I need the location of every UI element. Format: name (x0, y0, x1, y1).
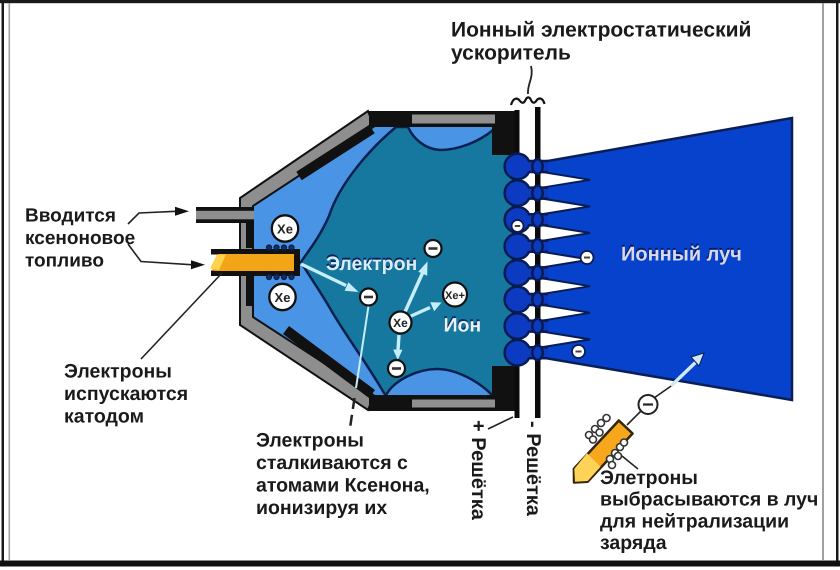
svg-text:Xe: Xe (393, 316, 408, 330)
svg-text:Элетроны: Элетроны (600, 467, 698, 489)
svg-text:Xe: Xe (277, 222, 293, 237)
svg-text:выбрасываются в луч: выбрасываются в луч (600, 489, 818, 511)
svg-text:Xe: Xe (275, 290, 291, 305)
svg-text:Электрон: Электрон (326, 253, 417, 275)
svg-text:для нейтрализации: для нейтрализации (600, 511, 789, 533)
svg-text:заряда: заряда (600, 532, 667, 554)
svg-text:Ионный электростатический: Ионный электростатический (451, 19, 751, 42)
svg-text:испускаются: испускаются (64, 383, 188, 405)
svg-text:+ Решётка: + Решётка (467, 420, 489, 521)
svg-text:топливо: топливо (25, 250, 104, 271)
svg-text:Вводится: Вводится (25, 205, 116, 226)
svg-text:ксеноновое: ксеноновое (25, 228, 135, 249)
svg-text:Электроны: Электроны (256, 430, 364, 452)
svg-text:ионизируя их: ионизируя их (256, 497, 387, 519)
svg-text:атомами Ксенона,: атомами Ксенона, (256, 475, 430, 497)
svg-text:Ионный луч: Ионный луч (621, 244, 742, 266)
svg-text:катодом: катодом (64, 406, 144, 428)
svg-text:сталкиваются с: сталкиваются с (256, 452, 408, 474)
svg-text:- Решётка: - Решётка (522, 421, 544, 517)
svg-text:Xe+: Xe+ (445, 290, 465, 302)
svg-text:ускоритель: ускоритель (451, 42, 571, 65)
svg-text:Ион: Ион (444, 315, 482, 337)
svg-text:Электроны: Электроны (64, 361, 172, 383)
